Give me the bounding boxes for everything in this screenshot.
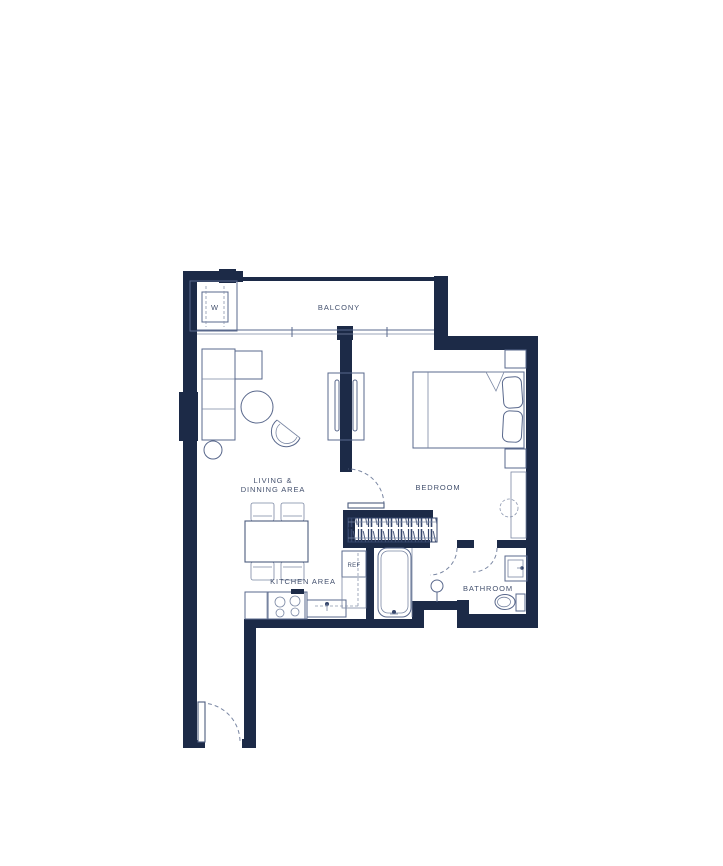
wall-partition bbox=[340, 326, 352, 472]
bathroom-door-arc bbox=[473, 548, 497, 572]
toilet-bowl-inner bbox=[498, 597, 511, 607]
floor-plan: BALCONY W LIVING & DINNING AREA bbox=[0, 0, 723, 866]
pillow bbox=[502, 411, 523, 443]
entry bbox=[198, 702, 240, 742]
wall-corridor-right bbox=[244, 619, 256, 748]
ref-label: REF bbox=[348, 563, 361, 569]
balcony: BALCONY bbox=[197, 303, 434, 337]
bedroom-door-leaf bbox=[348, 503, 384, 508]
stove-burner bbox=[275, 597, 285, 607]
balcony-railing bbox=[240, 277, 436, 281]
refrigerator: REF bbox=[342, 551, 366, 608]
bathtub-outline bbox=[378, 548, 411, 617]
living-label-line2: DINNING AREA bbox=[241, 485, 306, 494]
bathroom-sink bbox=[505, 556, 527, 581]
washer-closet: W bbox=[190, 281, 237, 331]
bathtub-drain bbox=[392, 610, 396, 614]
entry-door-leaf bbox=[198, 702, 205, 742]
wall-bath-top-right bbox=[497, 540, 538, 548]
dining-table bbox=[245, 521, 308, 562]
stove-control bbox=[291, 589, 304, 594]
bathtub-inner bbox=[381, 551, 408, 613]
blanket-fold bbox=[486, 372, 504, 391]
shower-door-arc bbox=[430, 548, 457, 575]
kitchen-sink bbox=[307, 600, 346, 617]
stove-burner bbox=[290, 596, 300, 606]
bedroom-door bbox=[348, 469, 384, 508]
stove-burner bbox=[291, 608, 299, 616]
pillow bbox=[502, 376, 523, 408]
sofa-chaise bbox=[235, 351, 262, 379]
tv-screen-right bbox=[353, 380, 357, 431]
wall-kitchen-bottom bbox=[244, 619, 424, 628]
balcony-label: BALCONY bbox=[318, 303, 360, 312]
wall-mullion-center bbox=[337, 326, 353, 340]
wall-wardrobe-top bbox=[343, 510, 433, 518]
wall-bath-top-mid bbox=[457, 540, 474, 548]
stove-outline bbox=[268, 592, 305, 619]
wall-bedroom-top bbox=[434, 336, 538, 350]
toilet-tank bbox=[516, 594, 525, 611]
coffee-table bbox=[241, 391, 273, 423]
stove bbox=[268, 589, 305, 619]
living-label-line1: LIVING & bbox=[254, 476, 293, 485]
shower-head-icon bbox=[431, 580, 443, 592]
wardrobe bbox=[348, 518, 437, 542]
dining-chair bbox=[251, 503, 274, 521]
bed bbox=[413, 372, 524, 448]
armchair bbox=[271, 420, 300, 447]
bathroom-label: BATHROOM bbox=[463, 584, 513, 593]
bathtub bbox=[378, 548, 411, 617]
bedroom-door-arc bbox=[348, 469, 384, 505]
wall-entry-stub-right bbox=[242, 739, 256, 748]
kitchen-label: KITCHEN AREA bbox=[270, 577, 336, 586]
armchair-front bbox=[277, 420, 300, 438]
stool bbox=[500, 499, 518, 517]
toilet-bowl bbox=[495, 595, 515, 610]
living-dining-area: LIVING & DINNING AREA bbox=[202, 349, 308, 580]
bed-mattress bbox=[413, 372, 524, 448]
wall-left-column bbox=[179, 392, 198, 441]
wall-right bbox=[526, 336, 538, 628]
dining-set bbox=[245, 503, 308, 580]
dining-chair bbox=[281, 503, 304, 521]
side-table bbox=[204, 441, 222, 459]
toilet bbox=[495, 594, 525, 611]
washer-label: W bbox=[211, 303, 219, 312]
bedroom-label: BEDROOM bbox=[415, 483, 460, 492]
nightstand-top bbox=[505, 350, 526, 368]
wall-kitchen-bath-divider bbox=[366, 540, 374, 628]
bedroom: BEDROOM bbox=[348, 350, 526, 538]
sofa bbox=[202, 349, 235, 440]
shower bbox=[431, 580, 443, 602]
stove-burner bbox=[276, 609, 284, 617]
tv-screen-left bbox=[335, 380, 339, 431]
wall-bathroom-bottom bbox=[457, 614, 538, 628]
floor-plan-canvas: BALCONY W LIVING & DINNING AREA bbox=[0, 0, 723, 866]
dressing-table bbox=[511, 472, 526, 538]
wall-left bbox=[183, 278, 197, 748]
entry-door-arc bbox=[201, 703, 240, 742]
nightstand-bottom bbox=[505, 449, 526, 468]
